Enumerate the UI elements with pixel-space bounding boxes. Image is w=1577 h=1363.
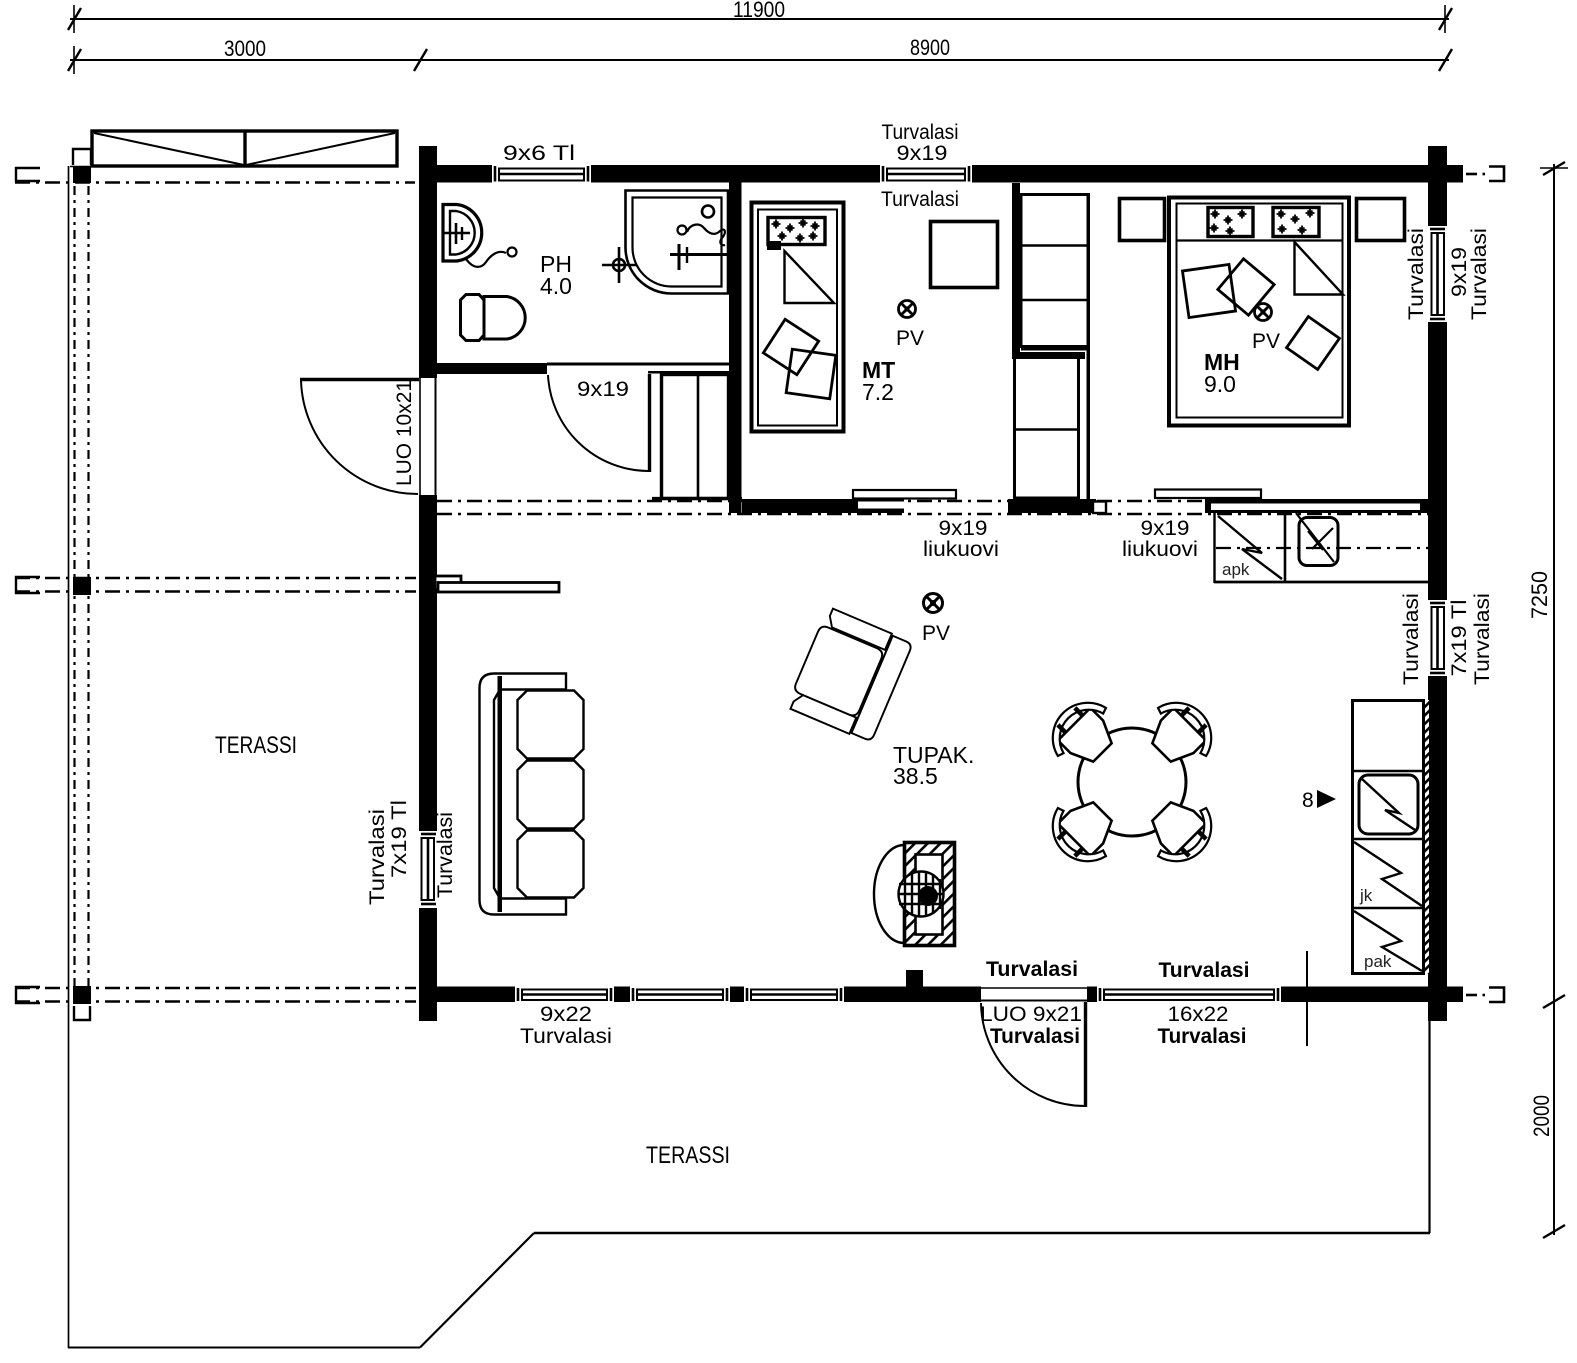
- svg-text:apk: apk: [1222, 560, 1250, 579]
- svg-text:Turvalasi: Turvalasi: [990, 1025, 1080, 1048]
- svg-text:Turvalasi: Turvalasi: [986, 958, 1078, 981]
- svg-text:8: 8: [1302, 789, 1314, 812]
- svg-text:4.0: 4.0: [540, 273, 572, 299]
- svg-text:16x22: 16x22: [1168, 1003, 1229, 1026]
- svg-text:Turvalasi: Turvalasi: [1468, 228, 1491, 320]
- svg-text:7.2: 7.2: [862, 379, 894, 405]
- svg-text:9.0: 9.0: [1204, 371, 1236, 397]
- svg-text:PV: PV: [1252, 330, 1280, 353]
- svg-text:Turvalasi: Turvalasi: [881, 188, 959, 211]
- svg-text:7x19 Tl: 7x19 Tl: [1448, 600, 1471, 677]
- svg-text:9x22: 9x22: [540, 1003, 592, 1026]
- svg-text:Turvalasi: Turvalasi: [1400, 593, 1423, 685]
- svg-text:Turvalasi: Turvalasi: [1471, 593, 1494, 685]
- svg-text:liukuovi: liukuovi: [923, 538, 999, 561]
- svg-text:2000: 2000: [1529, 1095, 1554, 1137]
- svg-text:9x6 Tl: 9x6 Tl: [503, 142, 575, 165]
- svg-text:LUO 10x21: LUO 10x21: [393, 380, 416, 486]
- svg-text:Turvalasi: Turvalasi: [1405, 228, 1428, 320]
- svg-text:liukuovi: liukuovi: [1122, 538, 1198, 561]
- svg-text:9x19: 9x19: [939, 517, 988, 540]
- svg-text:PV: PV: [896, 327, 924, 350]
- svg-text:Turvalasi: Turvalasi: [1159, 959, 1250, 982]
- svg-text:pak: pak: [1364, 952, 1392, 971]
- svg-text:Turvalasi: Turvalasi: [1158, 1025, 1247, 1048]
- svg-text:7x19 Tl: 7x19 Tl: [388, 800, 411, 878]
- svg-text:8900: 8900: [910, 35, 950, 60]
- svg-text:7250: 7250: [1527, 571, 1552, 619]
- svg-text:LUO 9x21: LUO 9x21: [980, 1003, 1082, 1026]
- svg-text:Turvalasi: Turvalasi: [366, 809, 389, 905]
- svg-text:Turvalasi: Turvalasi: [434, 812, 457, 898]
- svg-text:11900: 11900: [733, 0, 785, 22]
- svg-text:jk: jk: [1359, 886, 1373, 905]
- svg-text:3000: 3000: [224, 36, 266, 61]
- svg-text:38.5: 38.5: [893, 763, 938, 789]
- svg-text:9x19: 9x19: [897, 142, 948, 165]
- svg-text:Turvalasi: Turvalasi: [882, 121, 959, 144]
- svg-text:9x19: 9x19: [577, 378, 629, 401]
- svg-text:TERASSI: TERASSI: [646, 1142, 730, 1169]
- svg-text:PV: PV: [922, 622, 950, 645]
- svg-text:9x19: 9x19: [1141, 517, 1190, 540]
- svg-text:Turvalasi: Turvalasi: [520, 1025, 612, 1048]
- svg-text:TERASSI: TERASSI: [215, 732, 297, 759]
